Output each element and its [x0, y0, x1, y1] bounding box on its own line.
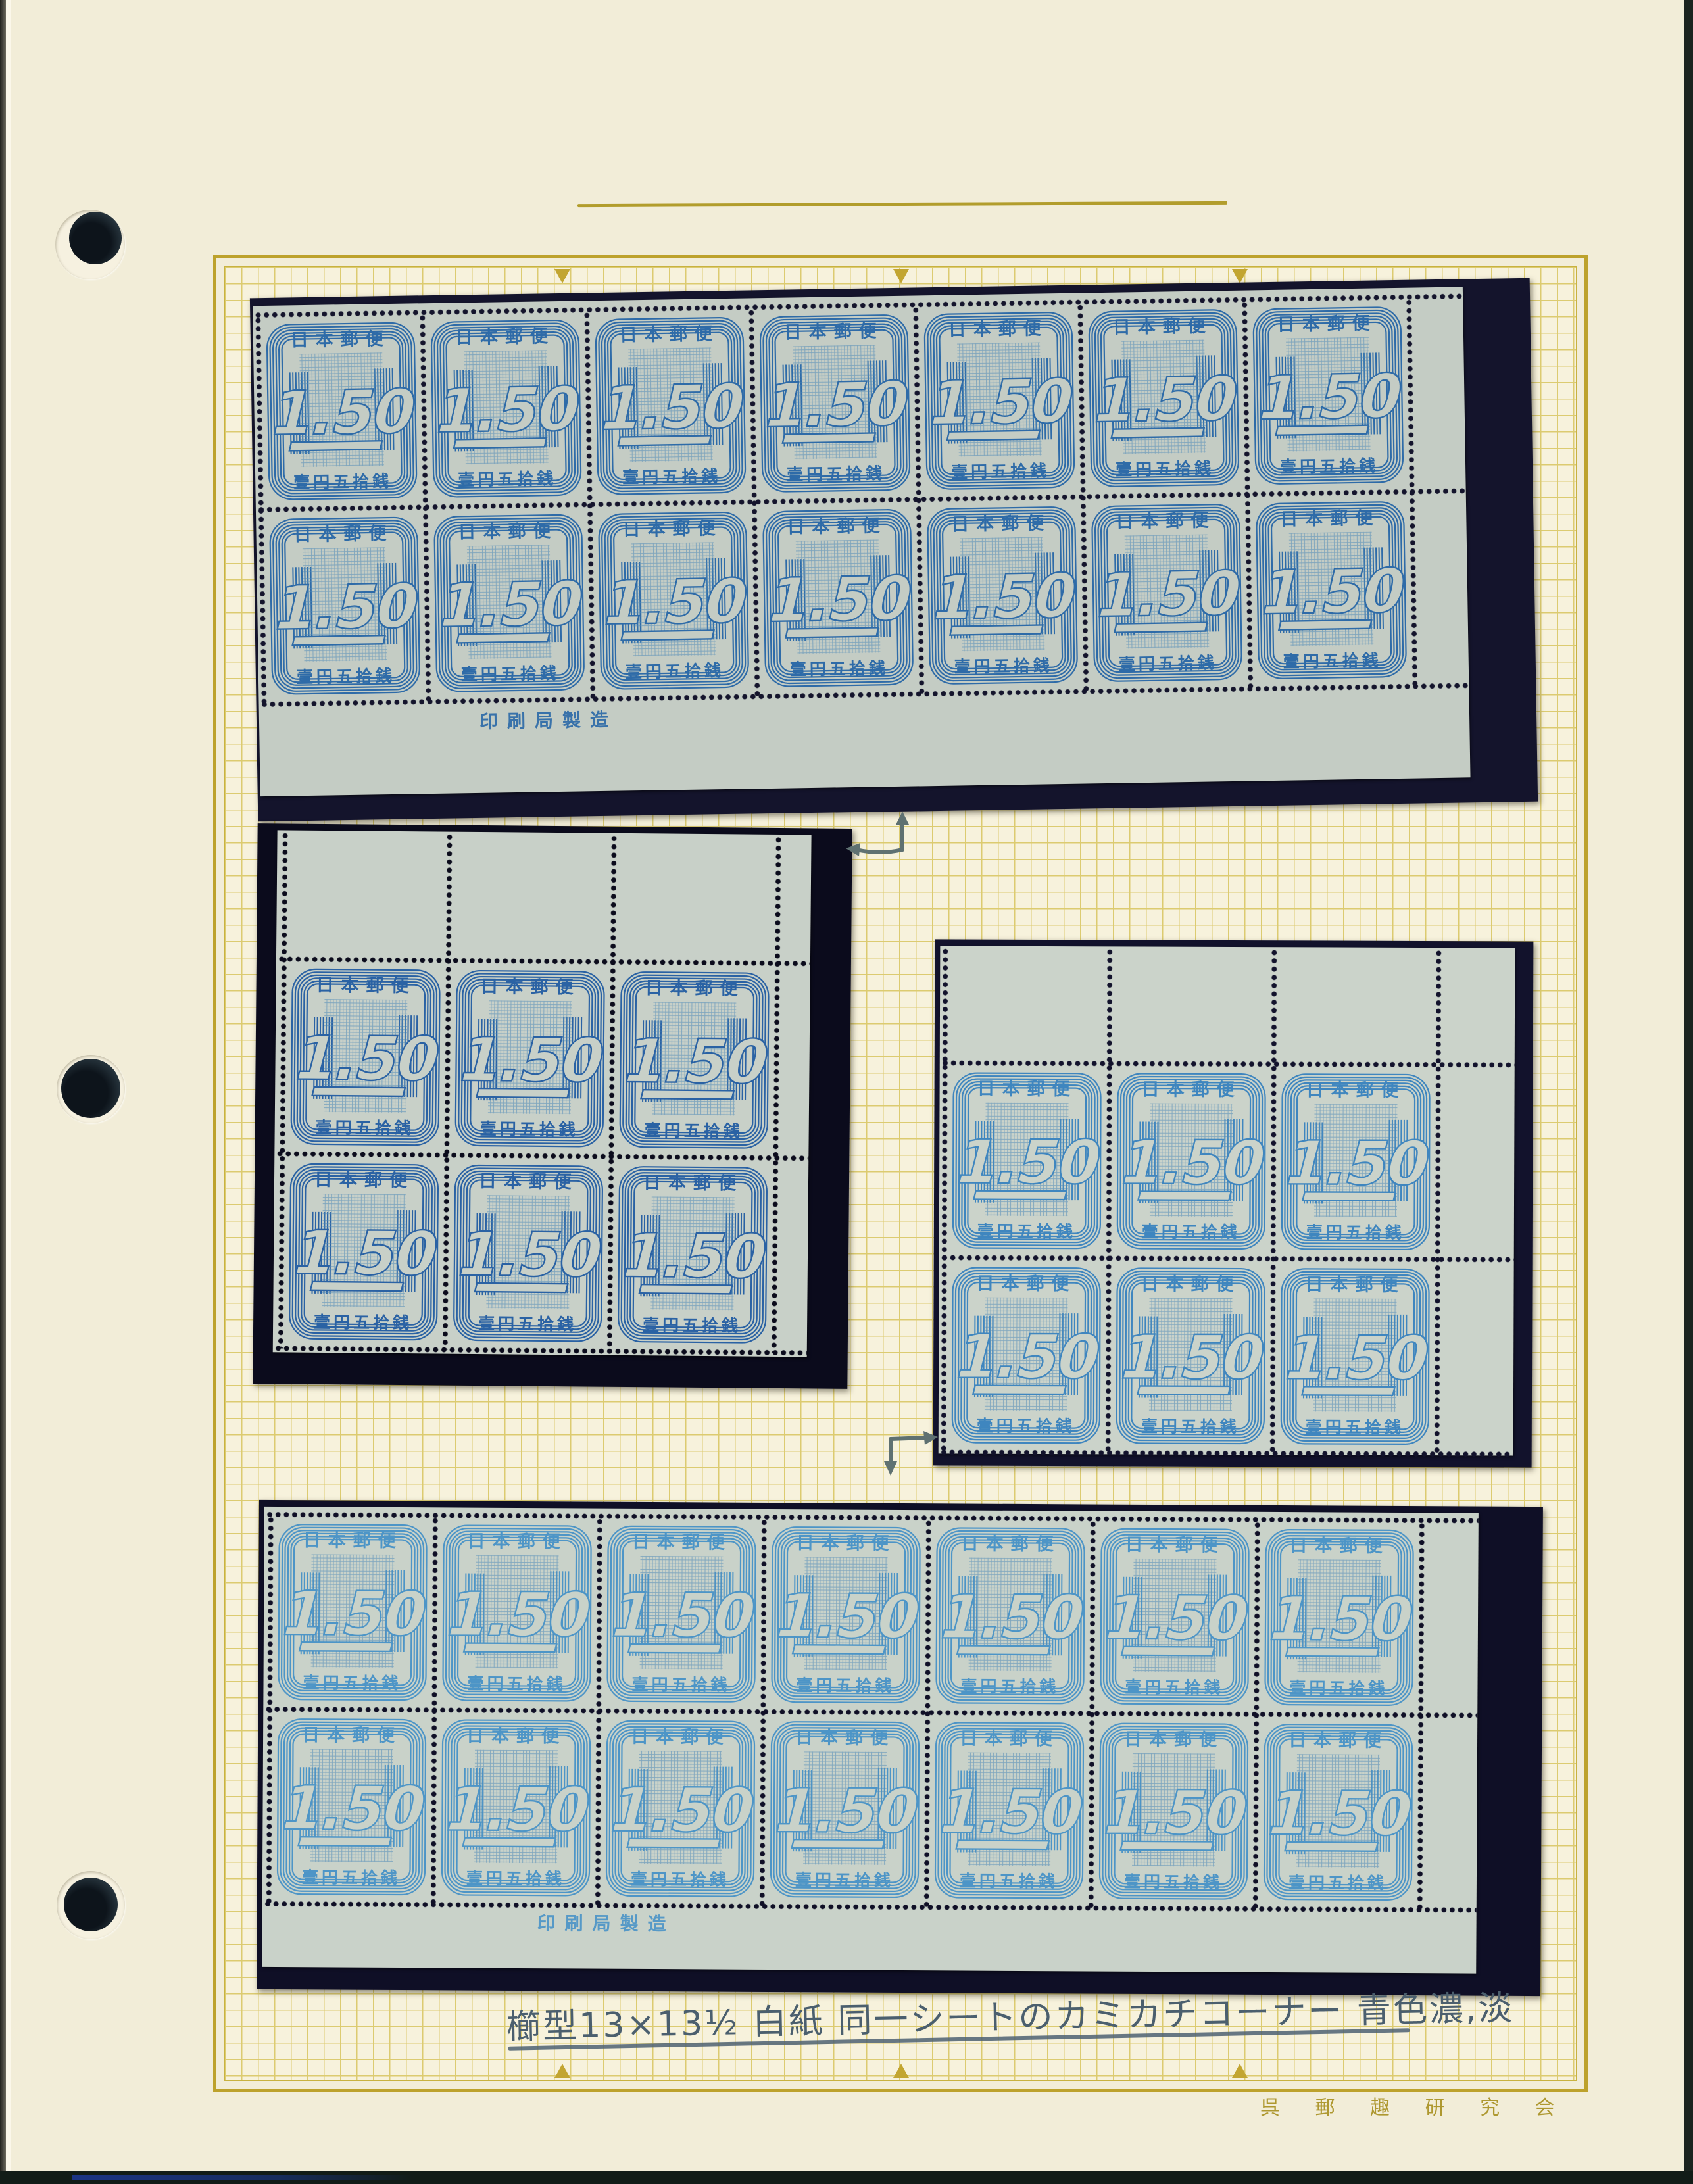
stamp [1273, 1259, 1438, 1454]
stamp [754, 499, 922, 696]
stamp [1244, 297, 1412, 495]
perforation-column [1433, 948, 1443, 1454]
stamp [269, 1709, 435, 1905]
quarter-mark-icon [554, 2064, 570, 2078]
stamp [916, 303, 1083, 500]
punch-hole-bottom [64, 1878, 118, 1931]
stamp [599, 1517, 764, 1712]
stamp [1080, 300, 1248, 497]
stamp [422, 310, 590, 507]
stamp-sheet: 印刷局製造 [253, 287, 1470, 796]
stamp [426, 504, 593, 702]
stamp-block-middle-left [253, 823, 852, 1389]
stamp [598, 1711, 764, 1906]
rotation-arrow-up-left-icon [841, 808, 914, 863]
stamp [944, 1257, 1109, 1453]
stamp [590, 502, 758, 699]
stamp [445, 1155, 612, 1351]
stamp [1248, 492, 1415, 689]
album-page: 日本郵便 1.50 壹円五拾銭 印刷局製造印刷局製造 [0, 0, 1693, 2184]
quarter-mark-icon [554, 269, 570, 283]
stamp [1083, 495, 1251, 692]
stamp [587, 307, 754, 504]
stamp [763, 1517, 929, 1712]
quarter-mark-icon [893, 269, 909, 283]
rotation-arrow-right-down-icon [876, 1415, 950, 1478]
stamp [434, 1515, 600, 1711]
perforation-column [1416, 1520, 1426, 1910]
stamp-block-top: 印刷局製造 [250, 278, 1538, 821]
scan-edge-left [0, 0, 6, 2184]
perforation-row [939, 1448, 1513, 1458]
stamp [258, 312, 426, 510]
punch-hole-middle [61, 1059, 120, 1118]
stamp [447, 961, 613, 1157]
punch-hole-top [69, 212, 122, 264]
stamp [261, 507, 429, 704]
stamp [927, 1712, 1092, 1908]
stamp [282, 959, 449, 1155]
title-rule [577, 201, 1227, 207]
quarter-mark-icon [893, 2064, 909, 2078]
quarter-mark-icon [1232, 2064, 1248, 2078]
stamp [610, 1157, 776, 1353]
stamp [281, 1153, 447, 1349]
stamp [1092, 1519, 1258, 1714]
plate-imprint: 印刷局製造 [537, 1909, 675, 1936]
stamp-sheet [939, 946, 1515, 1455]
club-name: 呉 郵 趣 研 究 会 [1260, 2091, 1569, 2120]
quarter-mark-icon [1232, 269, 1248, 283]
stamp [1108, 1258, 1273, 1453]
stamp-sheet: 印刷局製造 [262, 1507, 1479, 1974]
stamp [927, 1518, 1093, 1713]
stamp [919, 497, 1087, 694]
perforation-column [770, 835, 783, 1353]
stamp [1109, 1063, 1274, 1259]
stamp [433, 1710, 599, 1905]
plate-imprint: 印刷局製造 [479, 706, 618, 734]
stamp [1256, 1520, 1422, 1715]
stamp [1273, 1064, 1438, 1259]
page-edge-highlight [6, 0, 11, 2184]
stamp-block-middle-right [933, 939, 1534, 1467]
stamp [751, 304, 919, 502]
scan-edge-artifact [72, 2175, 414, 2180]
stamp-block-bottom: 印刷局製造 [257, 1500, 1543, 1996]
stamp [945, 1063, 1110, 1258]
scan-edge-right [1684, 0, 1693, 2184]
stamp [1091, 1714, 1257, 1909]
stamp [1256, 1714, 1421, 1910]
stamp [270, 1515, 435, 1710]
stamp [611, 962, 777, 1158]
stamp [762, 1712, 928, 1907]
stamp-sheet [273, 830, 812, 1357]
